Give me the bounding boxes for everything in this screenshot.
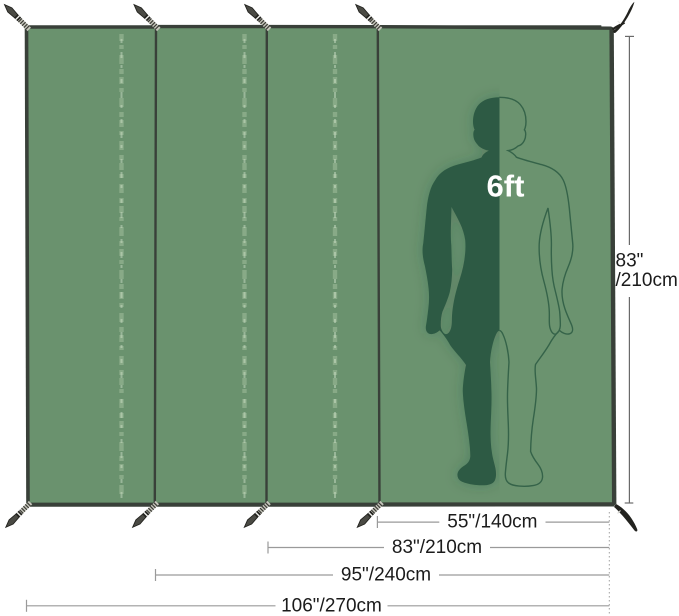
svg-text:95"/240cm: 95"/240cm <box>341 565 431 586</box>
svg-text:106"/270cm: 106"/270cm <box>281 595 382 616</box>
svg-text:83": 83" <box>616 251 644 272</box>
svg-text:6ft: 6ft <box>487 169 525 204</box>
svg-text:55"/140cm: 55"/140cm <box>447 512 537 533</box>
svg-text:/210cm: /210cm <box>616 270 678 291</box>
svg-text:83"/210cm: 83"/210cm <box>392 537 482 558</box>
